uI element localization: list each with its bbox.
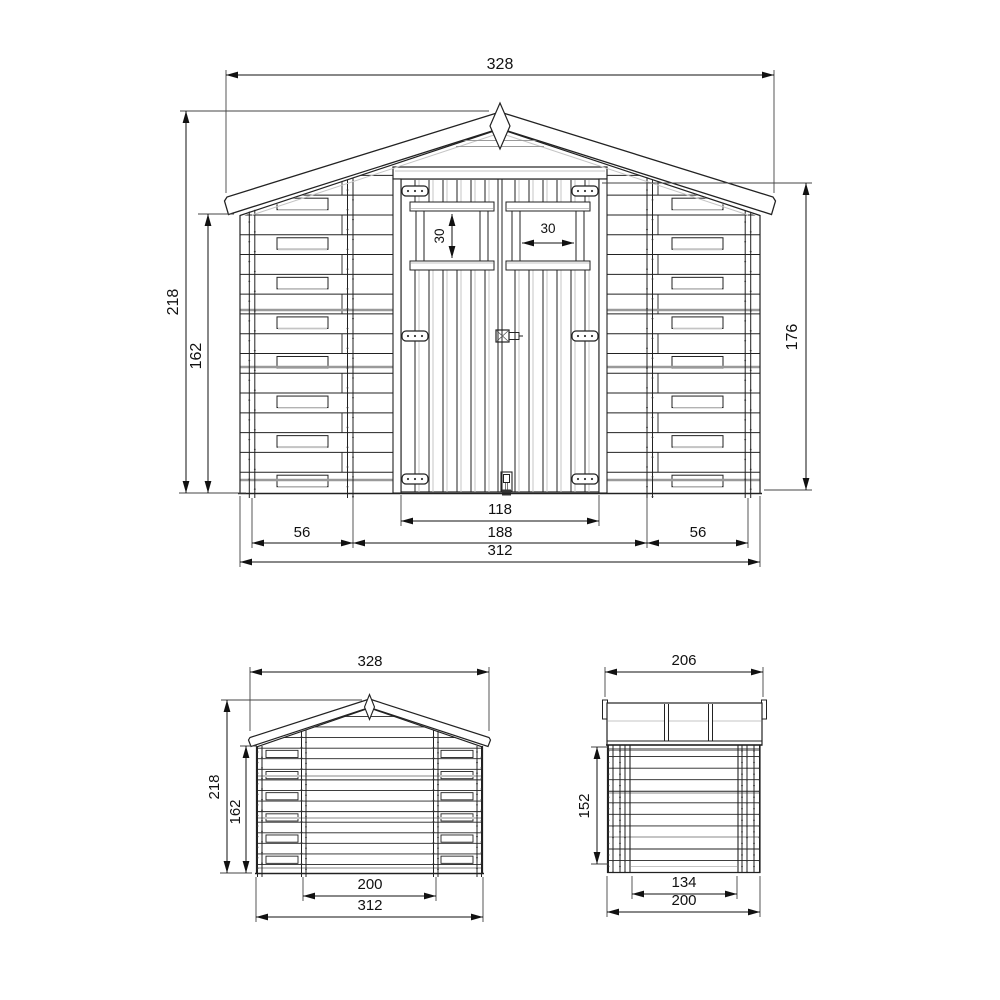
dim-side-base-depth: 200 bbox=[671, 892, 696, 909]
dim-door-opening-width: 118 bbox=[488, 501, 512, 518]
left-window-bottom-rail bbox=[410, 261, 494, 270]
rear-dimensions: 328 218 162 200 312 bbox=[206, 653, 489, 922]
right-window-bottom-rail bbox=[506, 261, 590, 270]
dim-rear-floor-inner-width: 200 bbox=[357, 876, 382, 893]
dim-rear-roof-width: 328 bbox=[357, 653, 382, 670]
left-window-left-stile bbox=[416, 211, 424, 261]
rear-roof-finial bbox=[365, 695, 375, 720]
door-lintel bbox=[393, 167, 607, 179]
dim-right-bay-width: 56 bbox=[690, 524, 707, 541]
right-door-window bbox=[506, 202, 590, 270]
dim-side-floor-inner-depth: 134 bbox=[671, 874, 696, 891]
dim-window-height: 30 bbox=[432, 228, 447, 243]
dim-side-wall-height: 152 bbox=[576, 793, 593, 818]
dim-door-section-width: 188 bbox=[487, 524, 512, 541]
front-elevation: 328 218 162 176 30 30 118 bbox=[165, 56, 812, 567]
dim-front-base-width: 312 bbox=[487, 542, 512, 559]
dim-side-roof-depth: 206 bbox=[671, 652, 696, 669]
front-right-wall-planks bbox=[601, 175, 760, 487]
dim-rear-base-width: 312 bbox=[357, 897, 382, 914]
front-left-wall-planks bbox=[240, 175, 399, 487]
left-window-top-rail bbox=[410, 202, 494, 211]
side-dimensions: 206 152 134 200 bbox=[576, 652, 763, 917]
dim-window-width: 30 bbox=[540, 221, 555, 236]
side-elevation: 206 152 134 200 bbox=[576, 652, 767, 917]
dim-front-roof-width: 328 bbox=[487, 56, 514, 73]
rear-wall-planks bbox=[257, 716, 482, 868]
right-window-left-stile bbox=[512, 211, 520, 261]
door-post-right bbox=[599, 179, 607, 493]
roof-finial bbox=[490, 103, 510, 149]
right-window-top-rail bbox=[506, 202, 590, 211]
dim-rear-eave-height: 162 bbox=[227, 799, 244, 824]
shed-technical-drawing: 328 218 162 176 30 30 118 bbox=[0, 0, 1000, 1000]
dim-left-bay-width: 56 bbox=[294, 524, 311, 541]
right-window-opening bbox=[520, 211, 576, 261]
rear-roof bbox=[249, 695, 491, 747]
left-window-right-stile bbox=[480, 211, 488, 261]
side-roof bbox=[603, 700, 767, 745]
rear-roof-fascia-left bbox=[249, 699, 370, 747]
rear-elevation: 328 218 162 200 312 bbox=[206, 653, 491, 922]
side-roof-panel bbox=[607, 703, 762, 745]
dim-front-eave-height: 162 bbox=[188, 343, 205, 370]
dim-rear-total-height: 218 bbox=[206, 774, 223, 799]
dim-front-right-wall-height: 176 bbox=[784, 324, 801, 351]
right-window-right-stile bbox=[576, 211, 584, 261]
rear-wall-battens bbox=[257, 730, 483, 878]
door-post-left bbox=[393, 179, 401, 493]
double-door bbox=[393, 167, 607, 496]
dim-front-total-height: 218 bbox=[165, 289, 182, 316]
rear-roof-fascia-right bbox=[370, 699, 491, 747]
